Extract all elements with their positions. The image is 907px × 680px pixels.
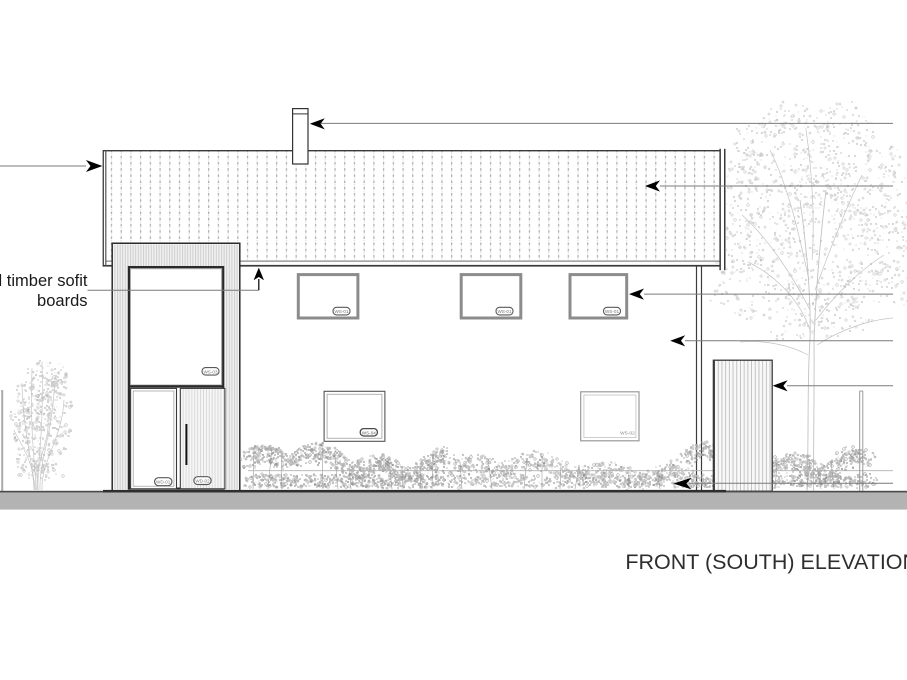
svg-text:WS-04: WS-04 (362, 430, 376, 435)
svg-text:WS-01: WS-01 (605, 309, 619, 314)
svg-text:WS-02: WS-02 (620, 431, 635, 437)
svg-text:WS-03: WS-03 (203, 369, 217, 374)
svg-text:WS-01: WS-01 (334, 309, 348, 314)
svg-text:WS-01: WS-01 (497, 309, 511, 314)
svg-text:WD-02: WD-02 (195, 479, 210, 484)
svg-text:WD-01: WD-01 (156, 480, 171, 485)
